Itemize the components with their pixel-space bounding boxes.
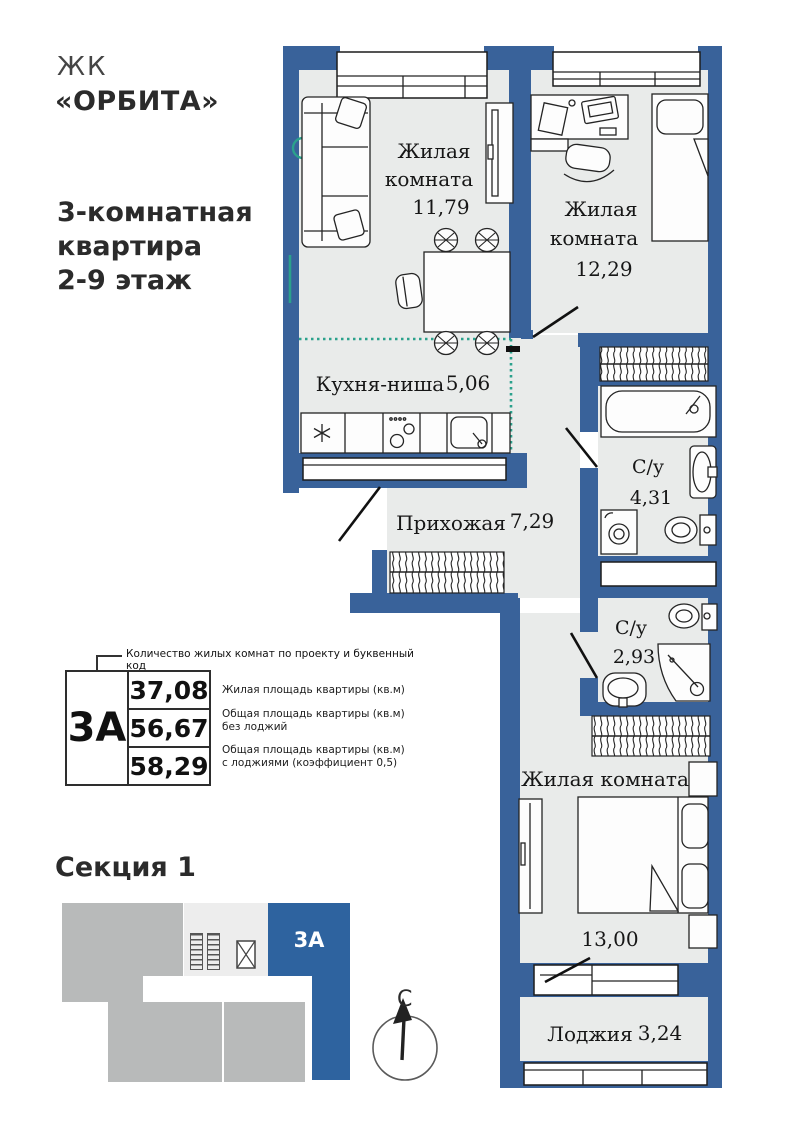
label-loggia-area: 3,24	[638, 1021, 683, 1045]
kitchen-counter	[301, 413, 510, 453]
bed-single	[652, 94, 708, 241]
label-living-name-1: Жилая	[397, 139, 470, 163]
label-bathroom1-name: С/у	[632, 456, 664, 478]
label-bathroom2-name: С/у	[615, 617, 647, 639]
label-kitchen-area: 5,06	[446, 371, 491, 395]
loggia-glazing	[524, 1063, 707, 1085]
chair-stool	[435, 332, 458, 355]
wardrobe-living	[486, 103, 513, 203]
chair-stool	[476, 332, 499, 355]
duct-shaft	[601, 562, 716, 586]
sink-icon	[451, 417, 487, 448]
label-living-area: 11,79	[412, 195, 469, 219]
bed-double	[578, 797, 708, 913]
label-hallway-area: 7,29	[510, 509, 555, 533]
label-kitchen-name: Кухня-ниша	[316, 372, 444, 396]
window-kitchen	[303, 458, 506, 480]
desk-shelf	[531, 139, 568, 151]
nightstand	[689, 915, 717, 948]
floor-plan: Жилая комната 11,79 Жилая комната 12,29 …	[0, 0, 800, 1131]
armchair	[395, 272, 423, 309]
window-living	[337, 52, 487, 98]
wardrobe-hatch-bedroom-3	[592, 716, 710, 756]
label-living-name-2: комната	[385, 167, 473, 191]
label-bathroom2-area: 2,93	[613, 646, 655, 668]
sofa	[302, 97, 370, 247]
pillow	[682, 864, 708, 908]
dining-table	[424, 252, 510, 332]
pillow	[657, 100, 703, 134]
label-loggia-name: Лоджия	[547, 1022, 632, 1046]
label-bedroom3-area: 13,00	[581, 927, 638, 951]
bathtub	[601, 386, 716, 437]
washbasin-2	[603, 673, 646, 707]
label-bathroom1-area: 4,31	[630, 487, 672, 509]
label-bedroom2-name-2: комната	[550, 226, 638, 250]
toilet-2	[669, 604, 717, 630]
label-hallway-name: Прихожая	[396, 511, 506, 535]
entrance-door-swing	[339, 487, 380, 541]
wardrobe-hatch-bathroom-closet	[600, 347, 708, 381]
toilet-1	[665, 515, 716, 545]
washing-machine	[601, 510, 637, 554]
label-bedroom2-area: 12,29	[575, 257, 632, 281]
label-bedroom3-name: Жилая комната	[521, 767, 689, 791]
sofa-pillow	[333, 209, 365, 241]
washbasin-1	[690, 446, 717, 498]
nightstand	[689, 762, 717, 796]
wardrobe-bedroom-3	[519, 799, 542, 913]
label-bedroom2-name-1: Жилая	[564, 197, 637, 221]
floorplan-page: ЖК «ОРБИТА» 3-комнатная квартира 2-9 эта…	[0, 0, 800, 1131]
chair-stool	[435, 229, 458, 252]
balcony-door-block	[534, 965, 678, 995]
chair-stool	[476, 229, 499, 252]
pillow	[682, 804, 708, 848]
wardrobe-hatch-hallway	[390, 552, 504, 593]
window-bedroom-2	[553, 52, 700, 86]
